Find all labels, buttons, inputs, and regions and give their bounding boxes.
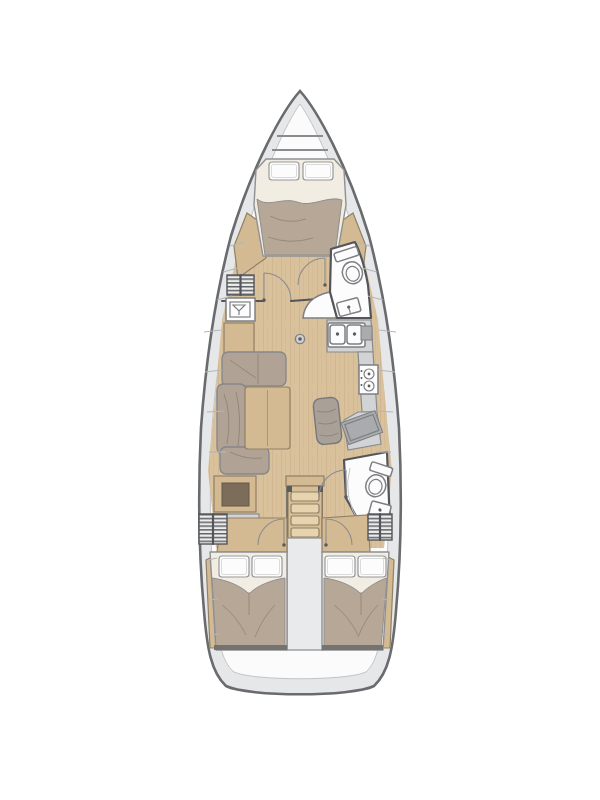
galley-trash-bin xyxy=(361,326,372,340)
starboard-pillow-2 xyxy=(358,556,386,577)
port-cabinet-forward xyxy=(224,323,254,354)
burner-rear-center xyxy=(368,385,371,388)
cabinet-opening xyxy=(222,483,249,506)
companionway-landing xyxy=(286,476,324,486)
forward-berth-blanket xyxy=(257,199,342,255)
port-berth-footboard xyxy=(214,645,287,650)
mast-post-center xyxy=(298,337,302,341)
engine-compartment xyxy=(287,538,323,650)
settee-cushion-side xyxy=(217,384,246,454)
starboard-pillow-1 xyxy=(325,556,355,577)
ladder-step-4 xyxy=(291,528,319,537)
aft-bulkhead-starboard xyxy=(322,515,370,552)
port-pillow-1 xyxy=(219,556,249,577)
starboard-berth-footboard xyxy=(322,645,383,650)
aft-cabin-port xyxy=(206,552,287,650)
ladder-bracket-port xyxy=(287,486,292,492)
burner-front-center xyxy=(368,373,371,376)
stove-knob xyxy=(361,370,363,372)
stove-knob xyxy=(361,384,363,386)
yacht-floor-plan xyxy=(0,0,600,800)
port-pillow-2 xyxy=(252,556,282,577)
ladder-step-1 xyxy=(291,492,319,501)
aft-cabin-starboard xyxy=(322,552,394,650)
settee-cushion-top xyxy=(222,352,286,386)
settee-cushion-bottom xyxy=(220,447,269,474)
ladder-step-2 xyxy=(291,504,319,513)
port-side-units xyxy=(224,275,255,354)
faucet-left xyxy=(336,332,339,335)
nav-seat xyxy=(313,397,343,445)
yacht-floor-plan-page xyxy=(0,0,600,800)
companionway xyxy=(286,476,324,548)
stove-knob xyxy=(361,377,363,379)
faucet-right xyxy=(353,332,356,335)
ladder-step-3 xyxy=(291,516,319,525)
